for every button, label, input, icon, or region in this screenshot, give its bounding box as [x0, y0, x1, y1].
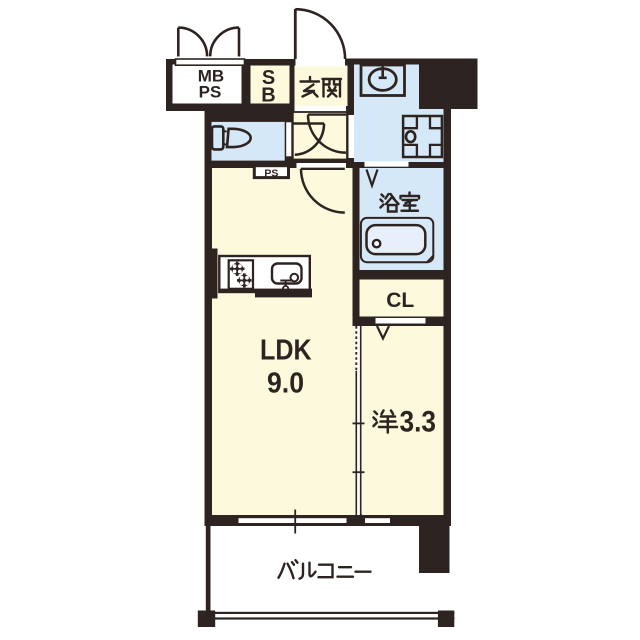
svg-text:CL: CL [386, 289, 414, 312]
svg-text:PS: PS [264, 167, 278, 179]
svg-text:9.0: 9.0 [267, 368, 304, 400]
svg-text:B: B [261, 85, 275, 107]
svg-text:3.3: 3.3 [400, 406, 437, 439]
svg-text:PS: PS [199, 83, 222, 102]
svg-text:LDK: LDK [260, 335, 312, 367]
